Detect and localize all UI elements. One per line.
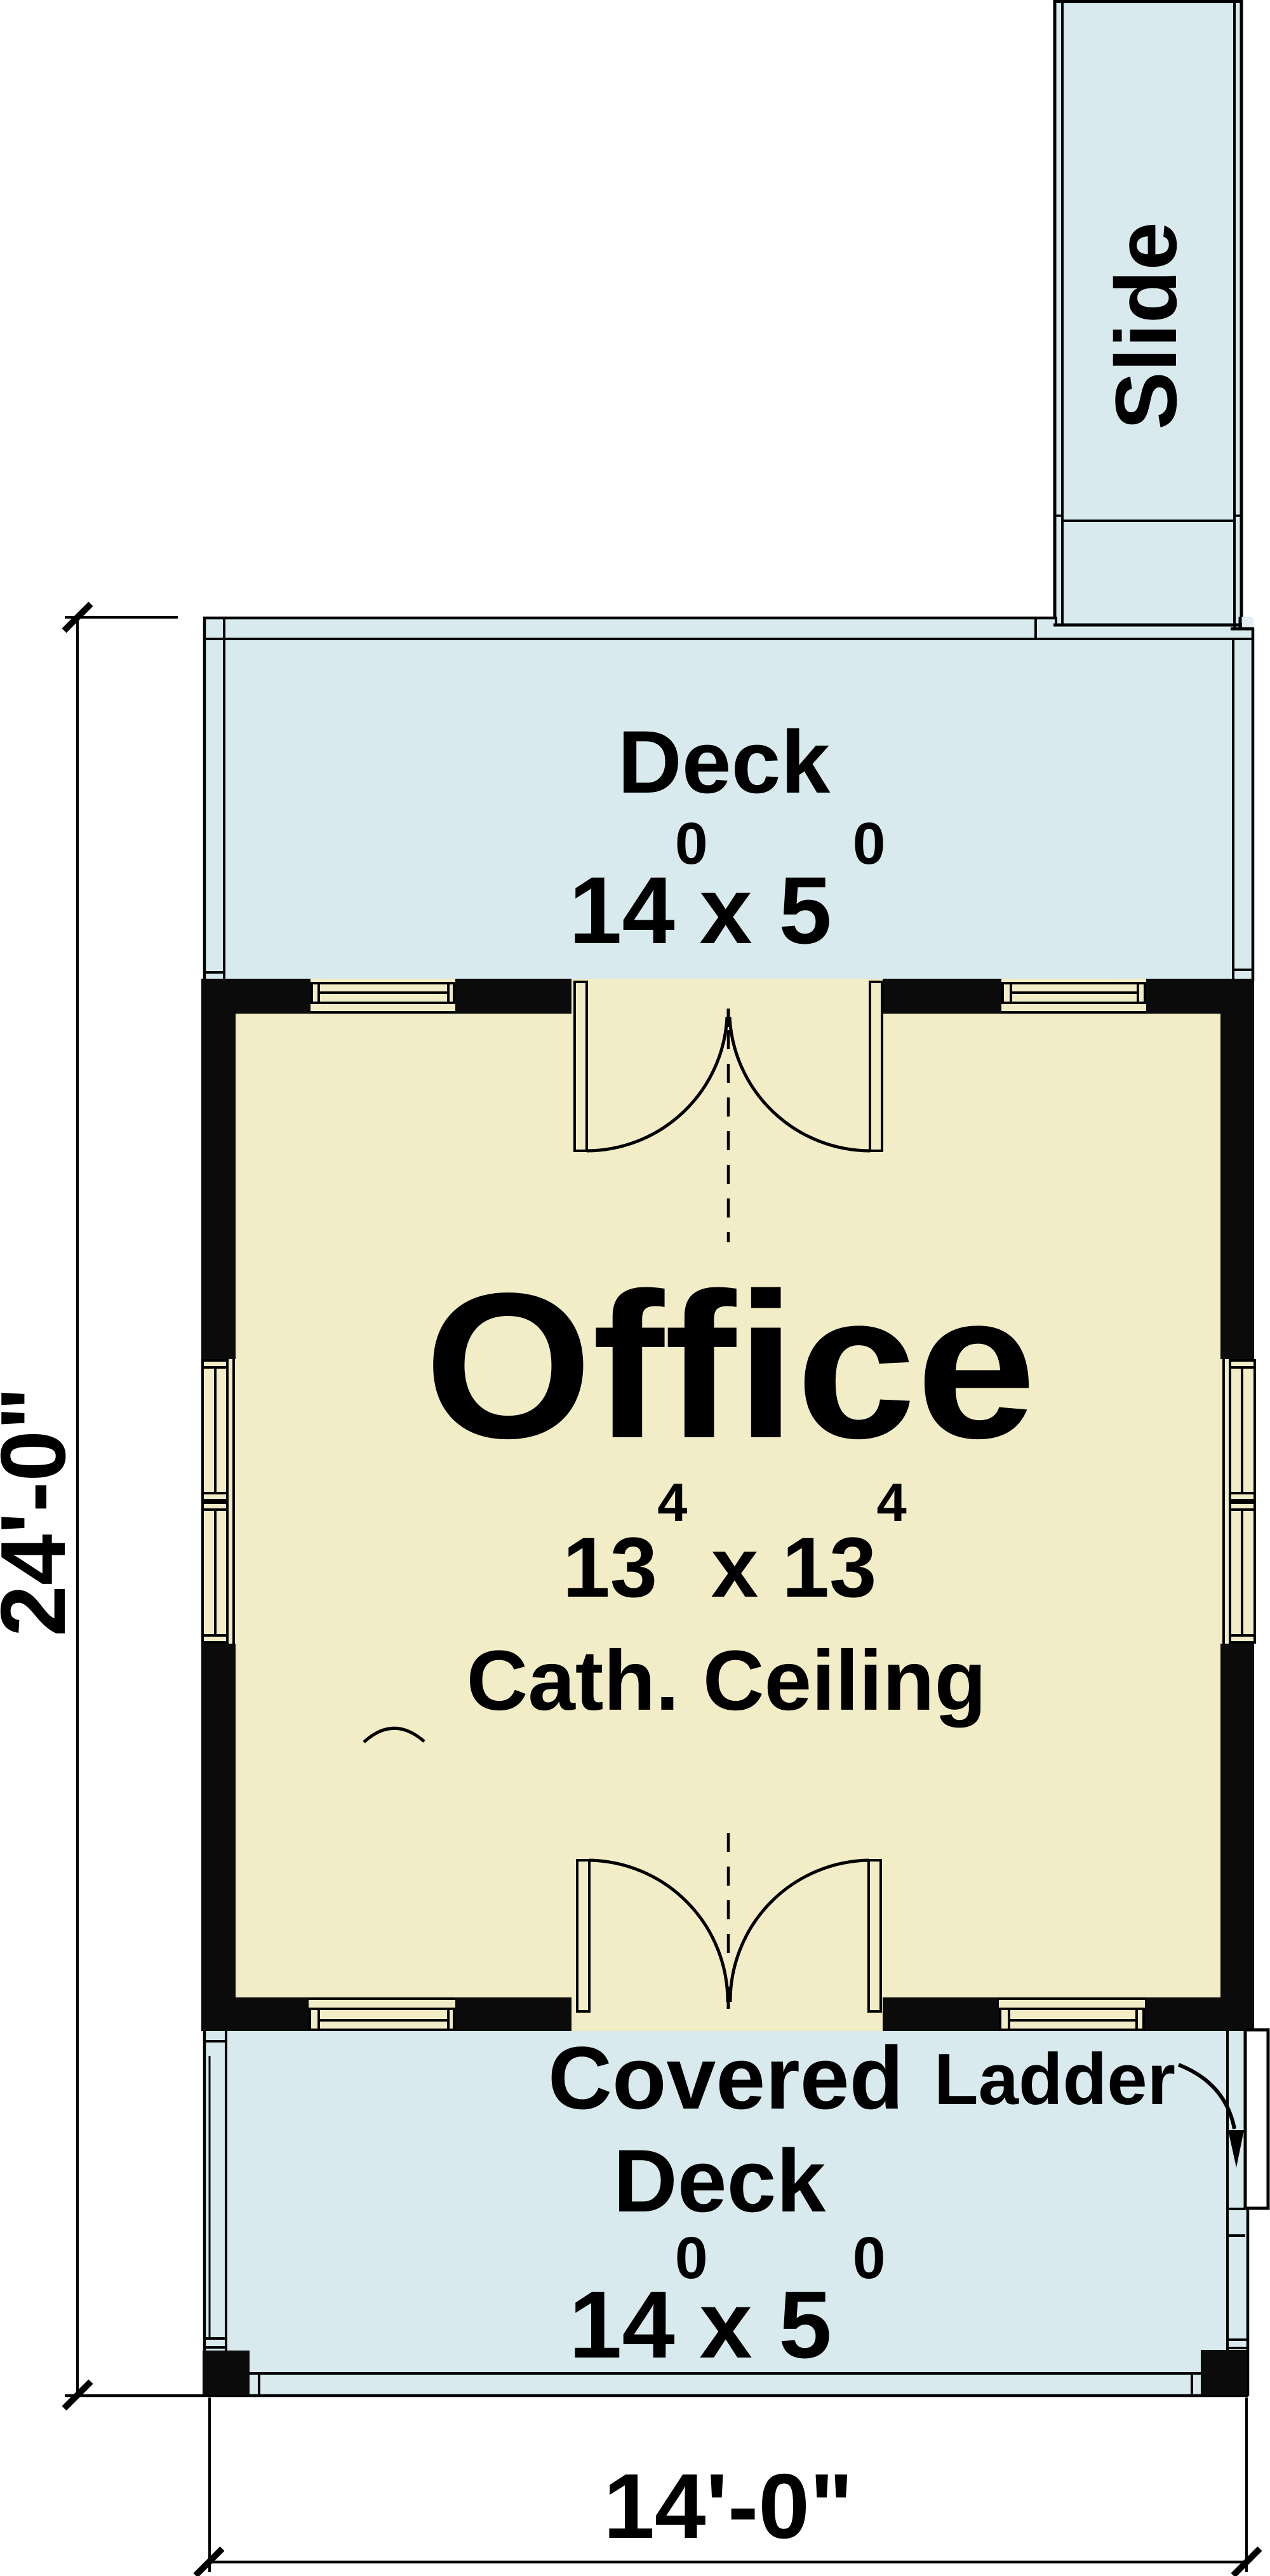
svg-text:Deck: Deck — [613, 2131, 826, 2231]
svg-text:Deck: Deck — [618, 712, 831, 812]
svg-text:Ladder: Ladder — [934, 2039, 1175, 2120]
svg-text:14'-0": 14'-0" — [603, 2455, 853, 2558]
svg-text:Slide: Slide — [1098, 222, 1195, 429]
svg-text:Office: Office — [424, 1249, 1036, 1481]
svg-text:Covered: Covered — [548, 2028, 904, 2128]
svg-text:Cath. Ceiling: Cath. Ceiling — [467, 1633, 987, 1728]
svg-text:24'-0": 24'-0" — [0, 1386, 84, 1636]
